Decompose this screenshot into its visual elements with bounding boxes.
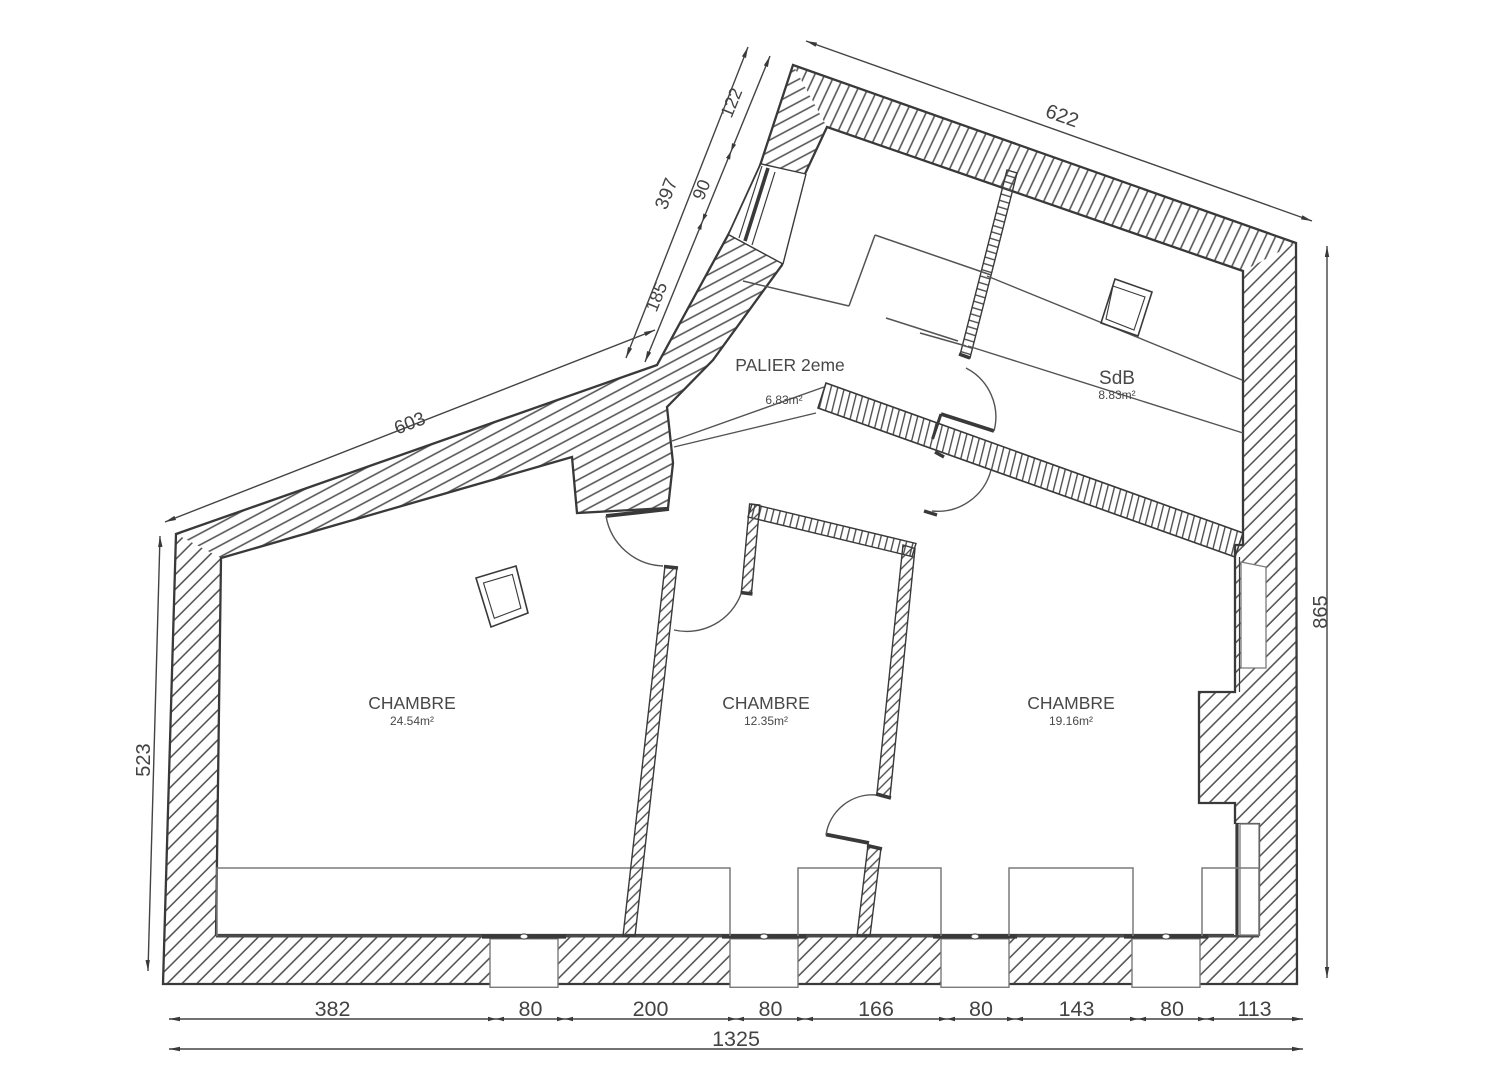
svg-text:CHAMBRE: CHAMBRE	[368, 693, 456, 713]
svg-text:19.16m²: 19.16m²	[1049, 714, 1093, 728]
svg-text:SdB: SdB	[1099, 368, 1135, 389]
svg-text:PALIER 2eme: PALIER 2eme	[735, 355, 845, 375]
svg-text:1325: 1325	[712, 1027, 760, 1051]
svg-text:12.35m²: 12.35m²	[744, 714, 788, 728]
svg-text:CHAMBRE: CHAMBRE	[1027, 693, 1115, 713]
svg-text:24.54m²: 24.54m²	[390, 714, 434, 728]
svg-text:382: 382	[315, 997, 351, 1021]
svg-text:200: 200	[633, 997, 669, 1021]
svg-text:80: 80	[519, 997, 543, 1021]
svg-text:166: 166	[858, 997, 894, 1021]
svg-text:113: 113	[1237, 997, 1271, 1021]
svg-text:8.83m²: 8.83m²	[1098, 388, 1135, 402]
svg-text:865: 865	[1310, 595, 1332, 628]
svg-text:143: 143	[1059, 997, 1095, 1021]
svg-text:6.83m²: 6.83m²	[765, 393, 802, 407]
svg-text:80: 80	[759, 997, 783, 1021]
svg-text:80: 80	[969, 997, 993, 1021]
svg-text:523: 523	[133, 743, 155, 776]
svg-text:CHAMBRE: CHAMBRE	[722, 693, 810, 713]
svg-text:80: 80	[1160, 997, 1184, 1021]
